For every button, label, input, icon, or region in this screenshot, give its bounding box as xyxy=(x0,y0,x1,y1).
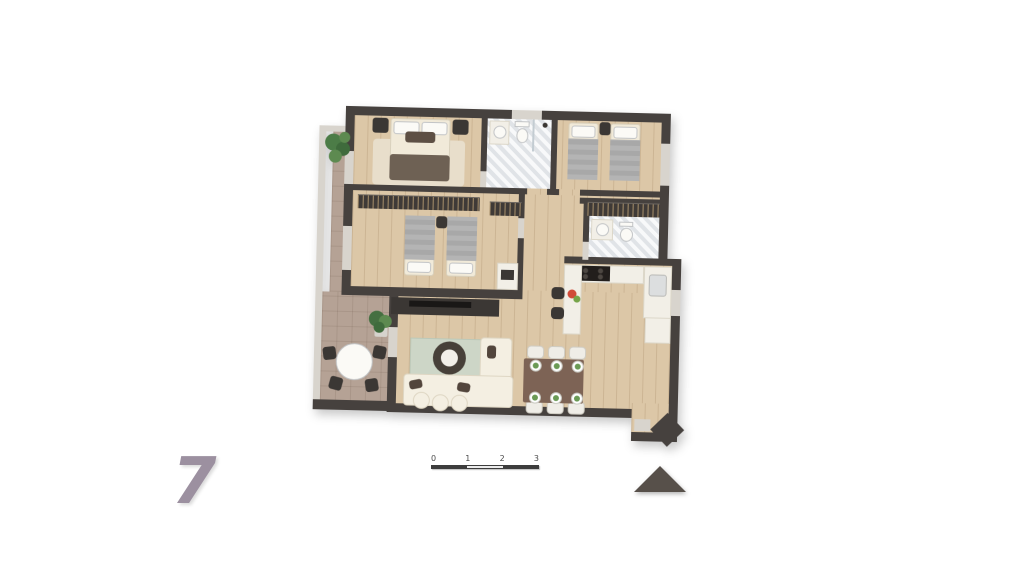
nightstand-right xyxy=(452,120,468,135)
dining-chair xyxy=(548,346,565,359)
accent-pillow xyxy=(405,131,435,143)
bed-blanket xyxy=(389,154,450,181)
toilet-tank xyxy=(619,222,633,227)
scale-bar-segments xyxy=(431,465,539,469)
door-bedroom1 xyxy=(480,171,486,187)
window-top xyxy=(512,110,542,120)
pillow xyxy=(407,261,431,273)
balcony-door xyxy=(388,327,398,357)
window-bedroom3 xyxy=(342,226,352,270)
sofa-cushion xyxy=(487,345,496,358)
scale-bar: 0 1 2 3 xyxy=(431,455,539,469)
floor-plan xyxy=(308,95,716,451)
scale-segment-light xyxy=(467,465,503,469)
door-bedroom3 xyxy=(518,218,524,238)
scale-tick-3: 3 xyxy=(534,455,539,463)
scale-labels: 0 1 2 3 xyxy=(431,455,539,463)
base-cabinet xyxy=(644,317,671,344)
nightstand xyxy=(599,122,610,135)
north-arrow-icon xyxy=(634,466,686,492)
shower-head xyxy=(543,123,548,128)
bed-blanket-gray xyxy=(404,215,435,260)
bed-blanket-gray xyxy=(567,138,598,180)
wardrobe-row-hall xyxy=(489,201,521,216)
dining-chair xyxy=(569,346,586,359)
balcony-wall-bottom xyxy=(313,399,397,411)
nightstand xyxy=(436,216,447,228)
pillow xyxy=(571,125,595,138)
unit-number: 7 xyxy=(172,450,217,514)
dining-chair xyxy=(527,345,544,358)
scale-tick-0: 0 xyxy=(431,455,436,463)
window-kitchen xyxy=(671,290,681,316)
scale-tick-2: 2 xyxy=(500,455,505,463)
bed-blanket-gray xyxy=(609,139,640,181)
scale-segment-dark xyxy=(503,465,539,469)
bar-stool xyxy=(551,287,564,299)
nightstand-left xyxy=(372,118,388,133)
sofa-cushion xyxy=(457,382,471,393)
toilet-tank xyxy=(515,121,530,127)
pillow xyxy=(449,262,473,274)
kitchen-sink xyxy=(648,274,667,296)
balcony-chair xyxy=(364,378,379,393)
door-bathroom2 xyxy=(582,242,588,260)
scale-tick-1: 1 xyxy=(465,455,470,463)
bar-stool xyxy=(551,307,564,319)
wardrobe-row-bathroom2 xyxy=(587,202,659,218)
pillow xyxy=(613,126,637,139)
cabinet-item xyxy=(501,270,514,280)
window-bedroom2 xyxy=(660,144,670,186)
balcony-chair xyxy=(322,346,336,360)
door-bedroom2 xyxy=(559,189,580,196)
balcony-chair xyxy=(372,345,387,360)
door-bathroom1 xyxy=(527,188,547,194)
scale-segment-dark xyxy=(431,465,467,469)
wardrobe-row-bedroom3 xyxy=(358,194,480,211)
bed-blanket-gray xyxy=(446,216,477,261)
entry-threshold xyxy=(634,419,650,431)
